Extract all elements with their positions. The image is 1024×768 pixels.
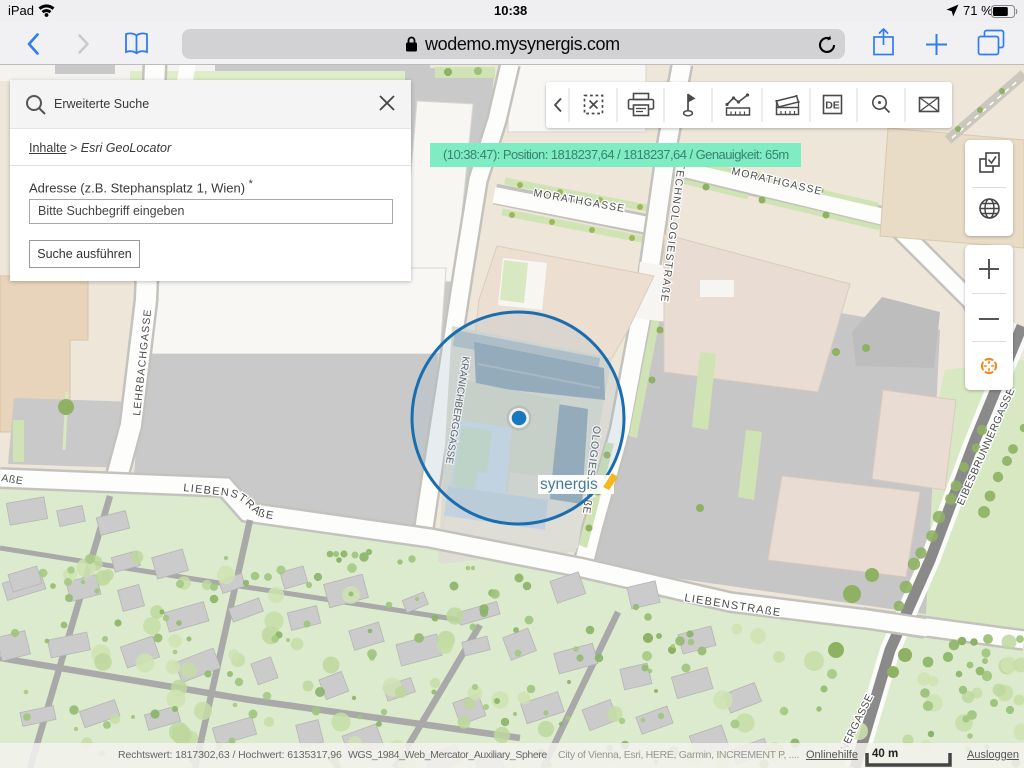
svg-text:DE: DE	[825, 100, 840, 112]
svg-text:synergis: synergis	[540, 476, 598, 493]
